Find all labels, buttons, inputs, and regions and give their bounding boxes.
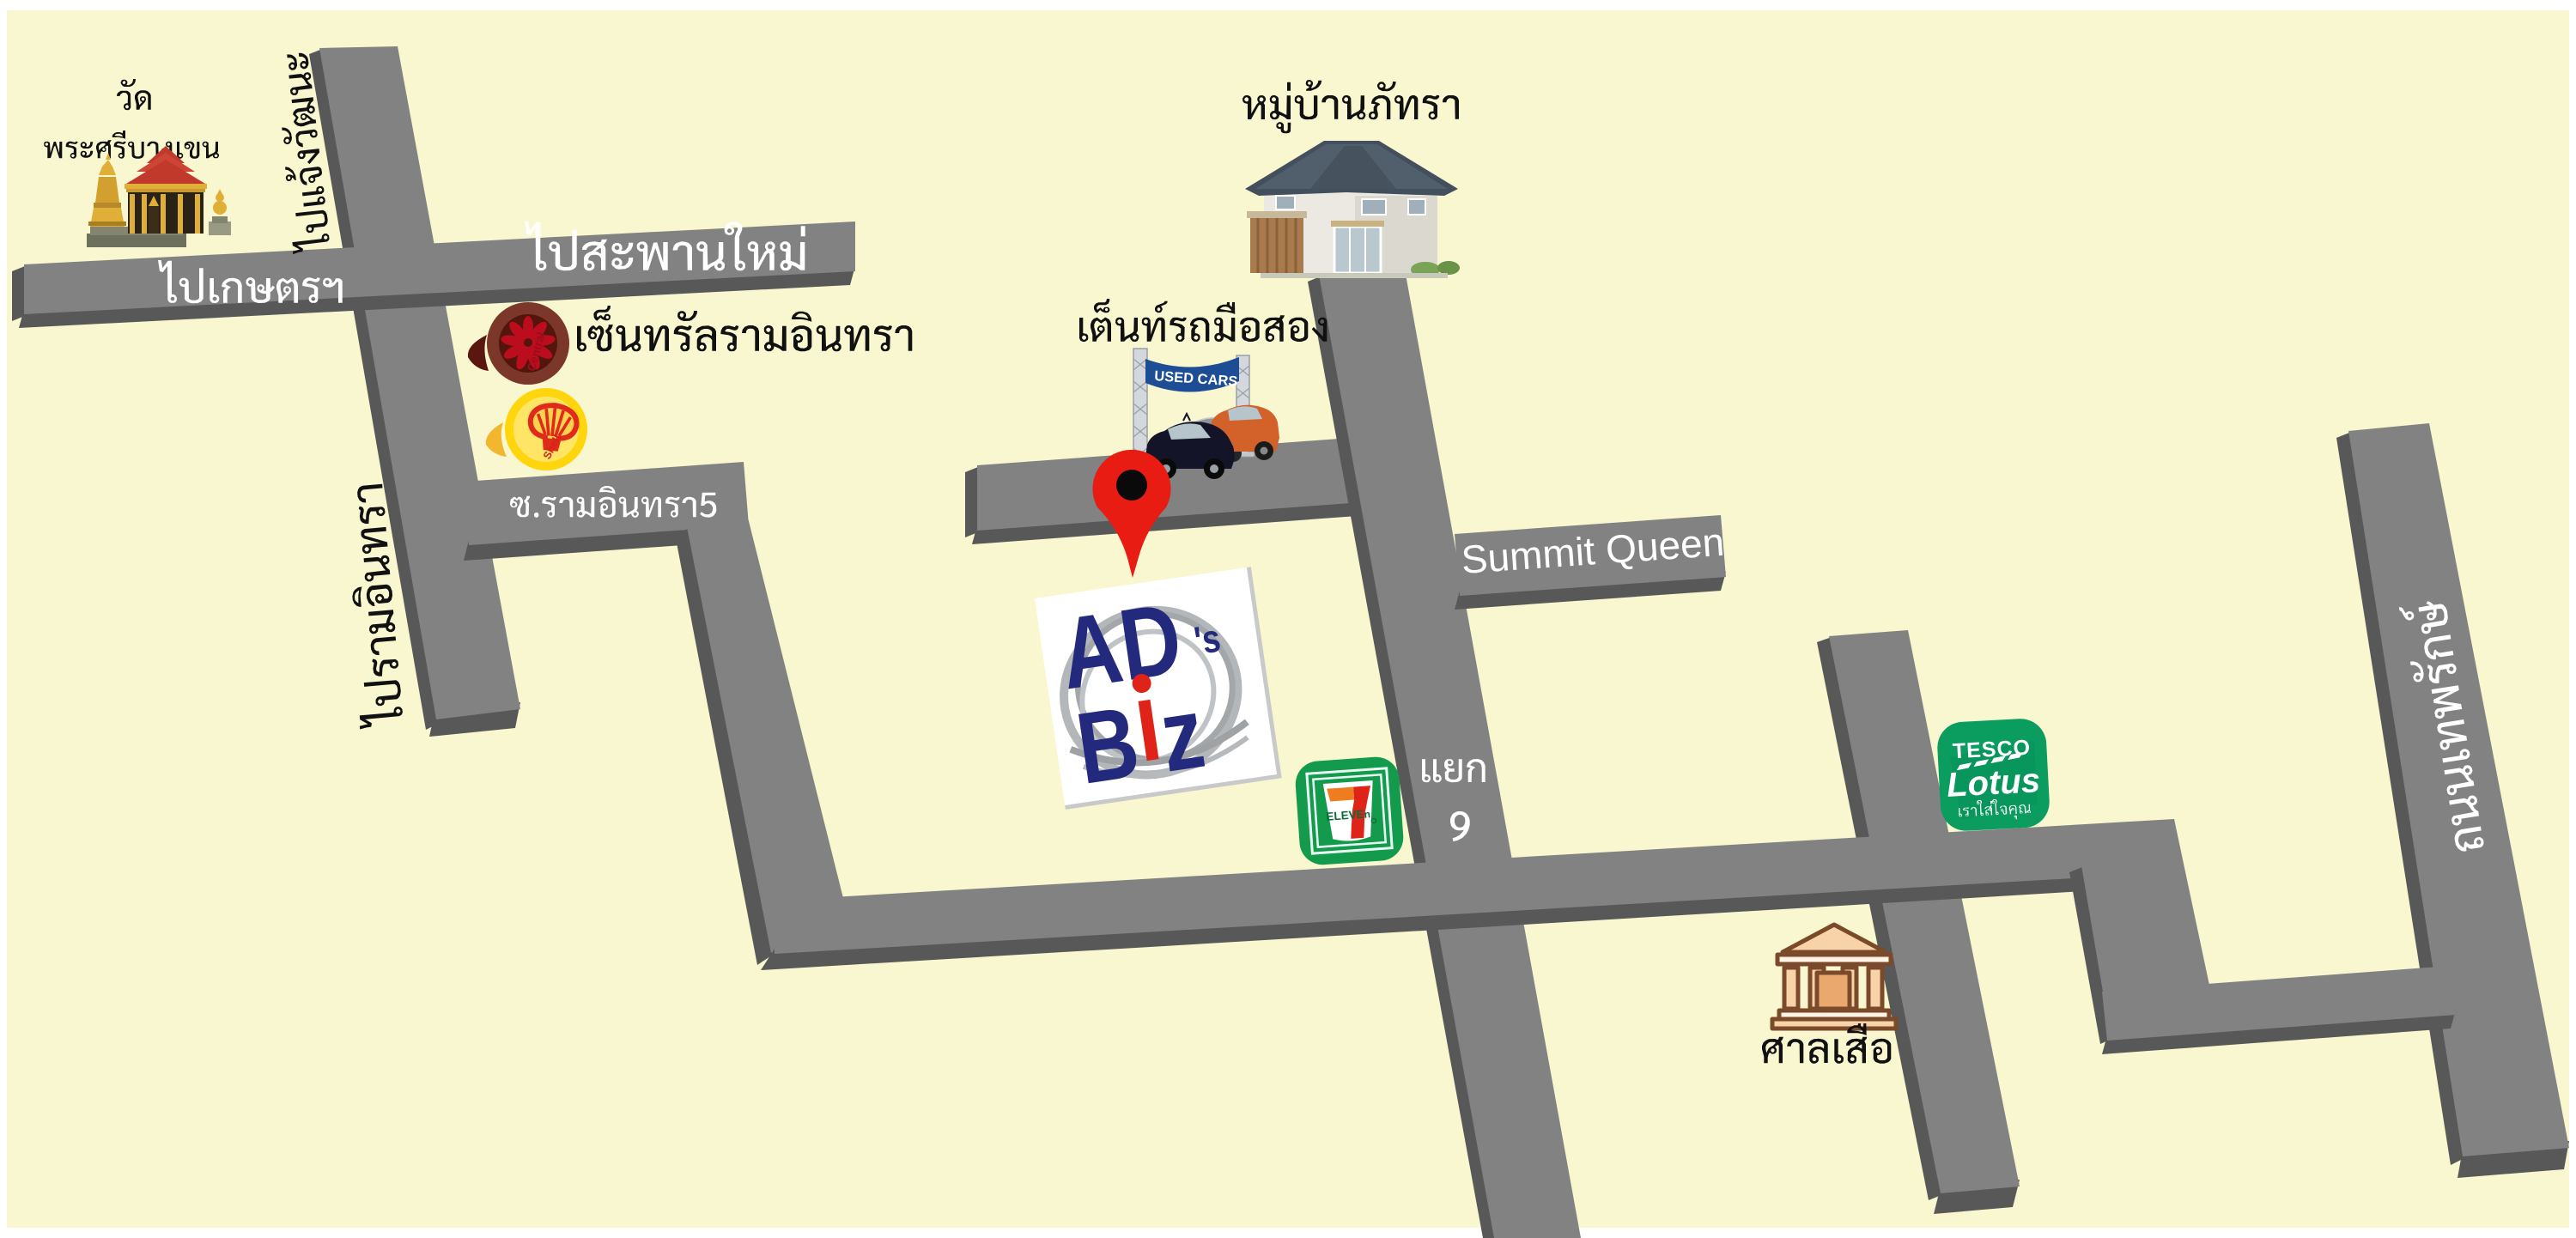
svg-text:TESCO: TESCO (1952, 736, 2031, 764)
svg-text:Lotus: Lotus (1946, 762, 2041, 804)
